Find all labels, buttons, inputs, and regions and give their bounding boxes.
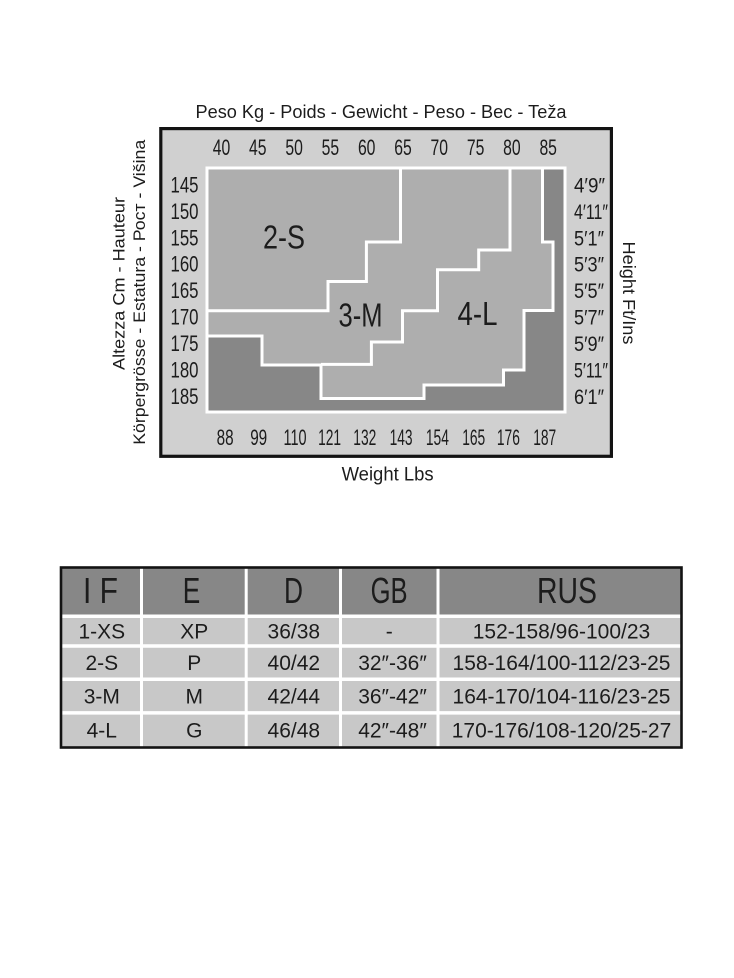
svg-text:145: 145 xyxy=(171,173,199,198)
svg-text:6′1″: 6′1″ xyxy=(574,386,604,409)
svg-text:G: G xyxy=(186,720,202,743)
svg-text:1-XS: 1-XS xyxy=(78,621,125,644)
svg-text:5′11″: 5′11″ xyxy=(574,359,608,382)
svg-text:150: 150 xyxy=(171,199,199,224)
svg-text:2-S: 2-S xyxy=(85,652,118,675)
svg-text:5′1″: 5′1″ xyxy=(574,227,604,250)
svg-text:170: 170 xyxy=(171,305,199,330)
svg-text:XP: XP xyxy=(180,621,208,644)
svg-text:50: 50 xyxy=(285,135,303,160)
svg-text:65: 65 xyxy=(394,135,412,160)
svg-text:170-176/108-120/25-27: 170-176/108-120/25-27 xyxy=(452,720,672,743)
svg-text:110: 110 xyxy=(284,425,307,450)
svg-text:3-M: 3-M xyxy=(84,686,120,709)
svg-text:5′7″: 5′7″ xyxy=(574,307,604,330)
svg-text:180: 180 xyxy=(171,357,199,382)
svg-text:55: 55 xyxy=(322,135,340,160)
svg-text:99: 99 xyxy=(250,425,267,450)
svg-text:121: 121 xyxy=(318,425,341,450)
svg-text:70: 70 xyxy=(431,135,449,160)
svg-text:Peso Kg - Poids - Gewicht - Pe: Peso Kg - Poids - Gewicht - Peso - Bec -… xyxy=(196,101,568,122)
svg-text:45: 45 xyxy=(249,135,267,160)
svg-text:175: 175 xyxy=(171,331,199,356)
svg-text:-: - xyxy=(386,621,393,644)
svg-text:40: 40 xyxy=(213,135,231,160)
svg-text:42/44: 42/44 xyxy=(268,686,321,709)
svg-text:80: 80 xyxy=(503,135,521,160)
svg-text:5′5″: 5′5″ xyxy=(574,280,604,303)
svg-text:GB: GB xyxy=(371,570,408,611)
svg-text:I F: I F xyxy=(83,570,118,611)
svg-text:RUS: RUS xyxy=(537,570,597,611)
svg-text:5′3″: 5′3″ xyxy=(574,254,604,277)
svg-text:36/38: 36/38 xyxy=(268,621,321,644)
svg-text:152-158/96-100/23: 152-158/96-100/23 xyxy=(473,621,651,644)
svg-text:42″-48″: 42″-48″ xyxy=(358,720,427,743)
svg-text:36″-42″: 36″-42″ xyxy=(358,686,427,709)
svg-text:M: M xyxy=(186,686,204,709)
svg-text:Weight Lbs: Weight Lbs xyxy=(342,465,434,486)
svg-text:165: 165 xyxy=(171,278,199,303)
svg-text:Altezza Cm - Hauteur: Altezza Cm - Hauteur xyxy=(110,197,129,370)
svg-text:164-170/104-116/23-25: 164-170/104-116/23-25 xyxy=(453,686,671,709)
svg-text:165: 165 xyxy=(462,425,485,450)
svg-text:176: 176 xyxy=(497,425,520,450)
svg-text:E: E xyxy=(183,570,201,611)
svg-text:46/48: 46/48 xyxy=(268,720,321,743)
svg-text:Körpergrösse - Estatura - Рост: Körpergrösse - Estatura - Рост - Višina xyxy=(130,139,149,445)
svg-text:155: 155 xyxy=(171,225,199,250)
svg-text:143: 143 xyxy=(390,425,413,450)
svg-text:P: P xyxy=(187,652,201,675)
svg-text:3-M: 3-M xyxy=(339,297,383,334)
svg-text:4-L: 4-L xyxy=(87,720,117,743)
svg-text:5′9″: 5′9″ xyxy=(574,333,604,356)
svg-text:60: 60 xyxy=(358,135,376,160)
svg-text:75: 75 xyxy=(467,135,485,160)
svg-text:Height Ft/Ins: Height Ft/Ins xyxy=(619,242,639,345)
svg-text:D: D xyxy=(284,570,303,611)
svg-text:40/42: 40/42 xyxy=(268,652,321,675)
svg-text:154: 154 xyxy=(426,425,449,450)
svg-text:88: 88 xyxy=(217,425,234,450)
svg-text:187: 187 xyxy=(533,425,556,450)
svg-text:4′9″: 4′9″ xyxy=(574,175,606,198)
svg-text:160: 160 xyxy=(171,252,199,277)
svg-text:132: 132 xyxy=(353,425,376,450)
svg-text:158-164/100-112/23-25: 158-164/100-112/23-25 xyxy=(453,652,671,675)
svg-text:85: 85 xyxy=(539,135,557,160)
svg-text:2-S: 2-S xyxy=(263,219,305,256)
svg-text:4′11″: 4′11″ xyxy=(574,201,608,224)
svg-text:32″-36″: 32″-36″ xyxy=(358,652,427,675)
svg-text:4-L: 4-L xyxy=(458,295,498,332)
svg-text:185: 185 xyxy=(171,384,199,409)
